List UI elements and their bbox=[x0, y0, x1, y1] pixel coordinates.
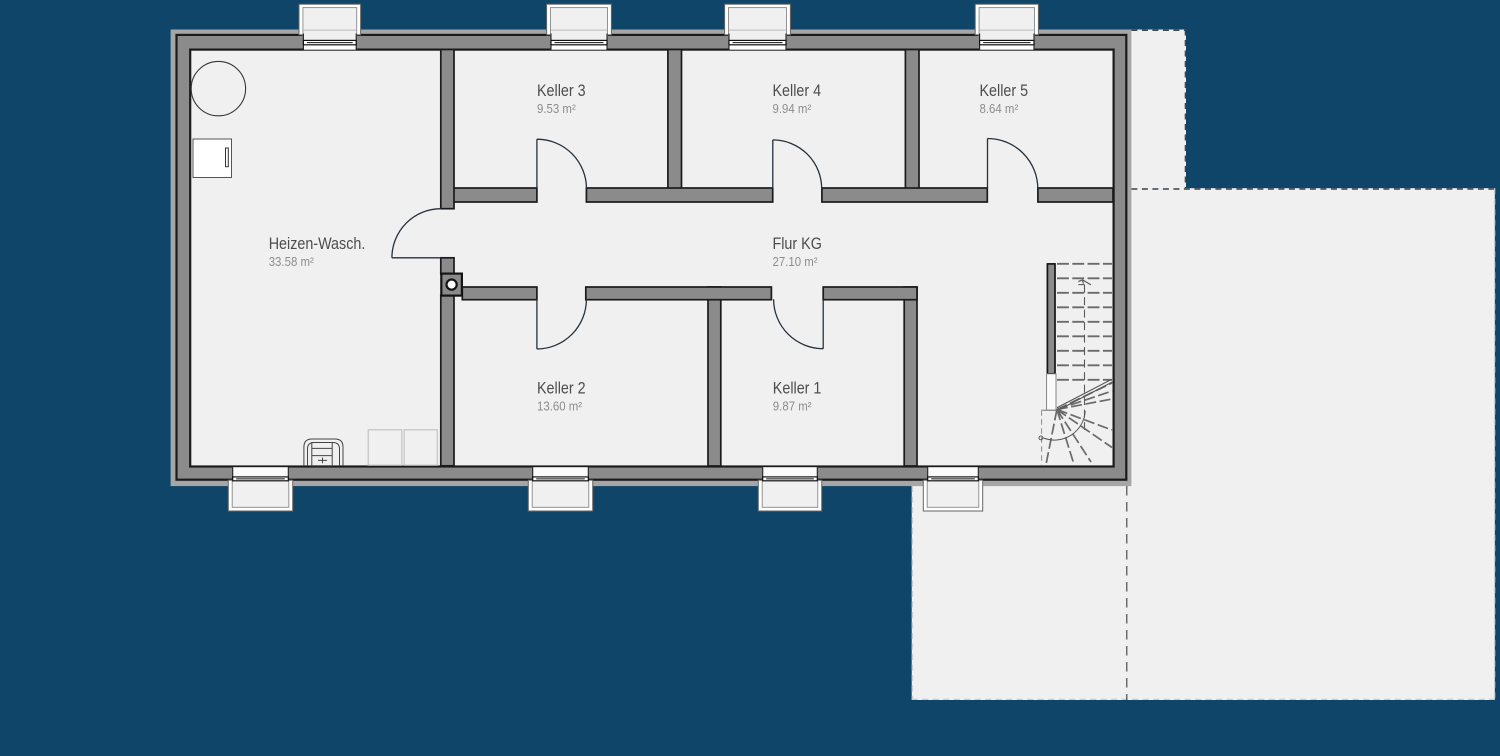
svg-text:Keller 3: Keller 3 bbox=[537, 82, 586, 100]
svg-text:Keller 1: Keller 1 bbox=[773, 379, 822, 397]
svg-text:33.58 m²: 33.58 m² bbox=[269, 255, 314, 270]
svg-text:13.60 m²: 13.60 m² bbox=[537, 399, 582, 414]
svg-text:Heizen-Wasch.: Heizen-Wasch. bbox=[269, 235, 366, 253]
svg-text:Keller 5: Keller 5 bbox=[980, 82, 1029, 100]
svg-text:27.10 m²: 27.10 m² bbox=[773, 255, 818, 270]
svg-text:Keller 2: Keller 2 bbox=[537, 379, 586, 397]
svg-text:9.87 m²: 9.87 m² bbox=[773, 399, 812, 414]
svg-text:8.64 m²: 8.64 m² bbox=[980, 102, 1019, 117]
svg-text:9.94 m²: 9.94 m² bbox=[773, 102, 812, 117]
svg-text:Keller 4: Keller 4 bbox=[773, 82, 822, 100]
svg-text:9.53 m²: 9.53 m² bbox=[537, 102, 576, 117]
svg-text:Flur KG: Flur KG bbox=[773, 235, 822, 253]
